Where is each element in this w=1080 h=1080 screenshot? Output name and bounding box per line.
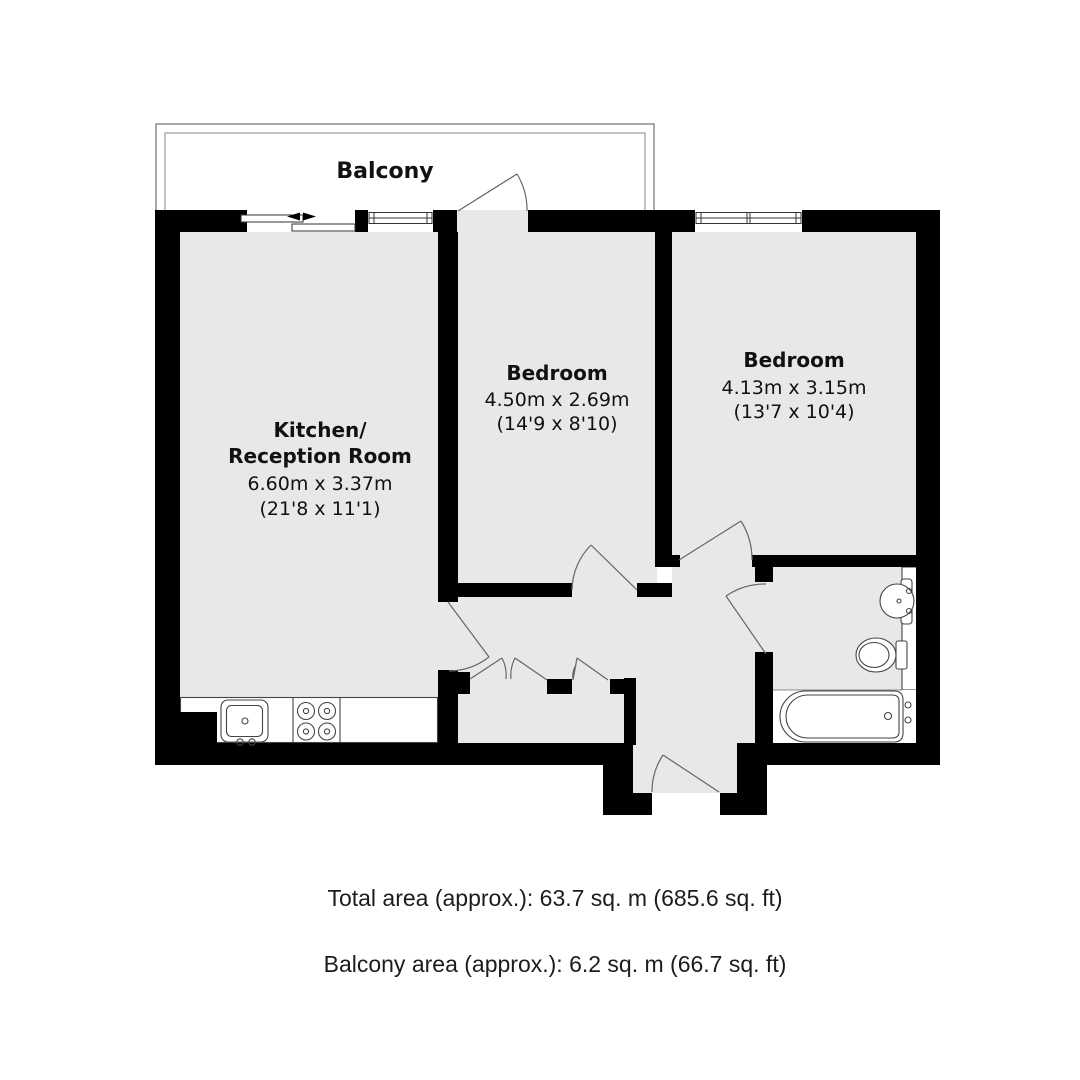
balcony-area-text: Balcony area (approx.): 6.2 sq. m (66.7 …: [324, 951, 787, 977]
room-dims-metric: 4.13m x 3.15m: [722, 377, 867, 399]
room-dims-imperial: (21'8 x 11'1): [259, 498, 380, 520]
bathtub-icon: [780, 691, 911, 742]
kitchen-sink-icon: [221, 700, 268, 745]
bedroom-window-icon: [696, 213, 801, 224]
room-name: Bedroom: [743, 348, 844, 372]
total-area-text: Total area (approx.): 63.7 sq. m (685.6 …: [327, 885, 782, 911]
room-dims-metric: 4.50m x 2.69m: [485, 389, 630, 411]
balcony-label: Balcony: [336, 159, 433, 184]
kitchen-window-icon: [369, 213, 432, 224]
room-name: Reception Room: [228, 444, 412, 468]
room-dims-imperial: (14'9 x 8'10): [496, 413, 617, 435]
floorplan-canvas: Balcony Kitchen/ Reception Room 6.60m x …: [0, 0, 1080, 1080]
floorplan-page: Balcony Kitchen/ Reception Room 6.60m x …: [0, 0, 1080, 1080]
area-summary: Total area (approx.): 63.7 sq. m (685.6 …: [324, 885, 787, 977]
balcony-door-threshold: [457, 210, 528, 232]
room-name: Kitchen/: [273, 418, 367, 442]
room-name: Bedroom: [506, 361, 607, 385]
sliding-panel-2: [292, 224, 355, 231]
kitchen-counter: [181, 698, 438, 743]
room-dims-metric: 6.60m x 3.37m: [248, 473, 393, 495]
toilet-icon: [856, 638, 907, 672]
room-dims-imperial: (13'7 x 10'4): [733, 401, 854, 423]
